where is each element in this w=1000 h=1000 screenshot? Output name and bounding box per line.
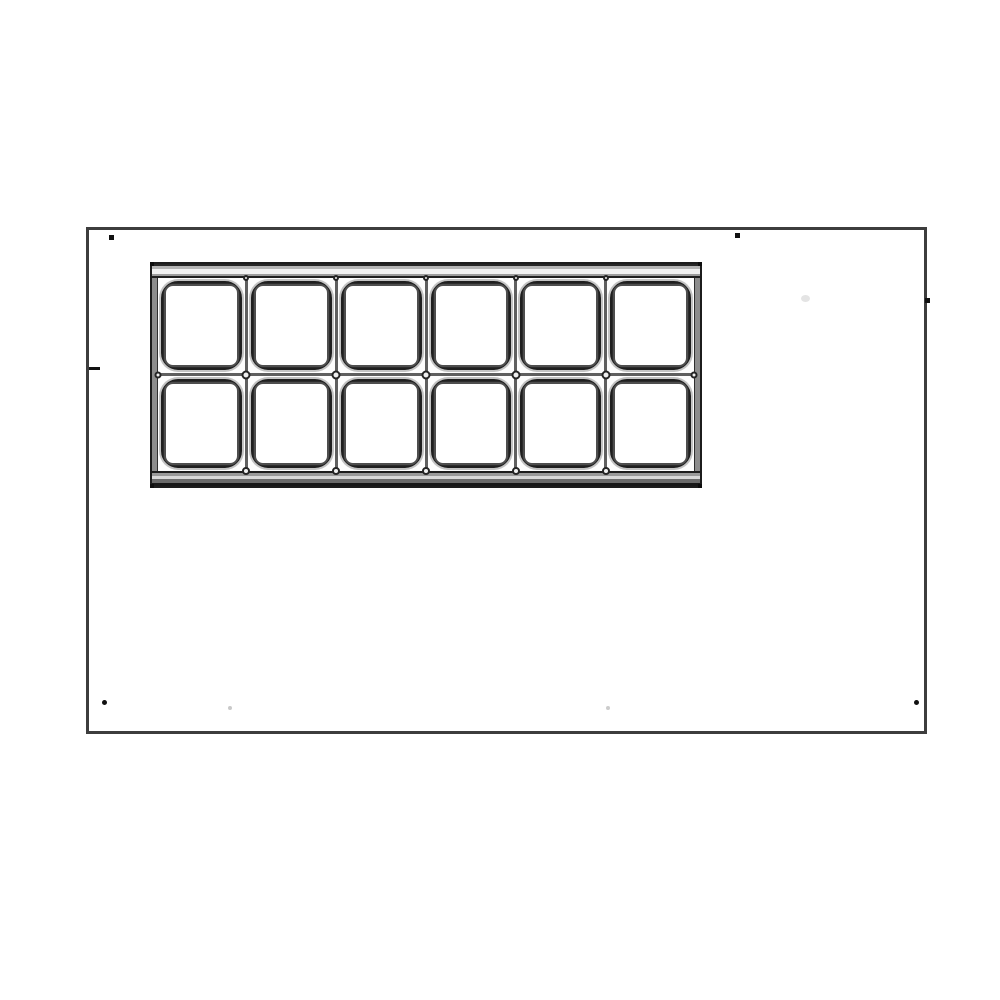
food-pan: [158, 376, 245, 471]
food-pan: [607, 376, 694, 471]
grid-junction-circle: [333, 275, 339, 281]
screw-dot-right-edge: [925, 298, 930, 303]
food-pan: [248, 278, 335, 373]
countertop-surface-outline: [86, 227, 927, 734]
pan-well-opening: [434, 284, 509, 367]
pan-rail-body: [152, 278, 700, 471]
unit-corner-dot: [150, 484, 154, 488]
unit-corner-dot: [698, 484, 702, 488]
pan-well-opening: [254, 284, 329, 367]
pan-well-opening: [434, 382, 509, 465]
pan-well-opening: [344, 382, 419, 465]
grid-junction-circle: [511, 370, 520, 379]
grid-junction-circle: [423, 275, 429, 281]
grid-junction-circle: [242, 370, 251, 379]
grid-junction-circle: [422, 370, 431, 379]
grid-junction-circle: [513, 275, 519, 281]
grid-junction-circle: [422, 467, 430, 475]
food-pan: [517, 376, 604, 471]
grid-junction-circle: [332, 370, 341, 379]
food-pan: [428, 376, 515, 471]
food-pan: [338, 376, 425, 471]
screw-dot-top-center: [735, 233, 740, 238]
food-pan: [338, 278, 425, 373]
grid-junction-circle: [691, 371, 698, 378]
grid-junction-circle: [601, 370, 610, 379]
faint-smudge-right: [801, 295, 810, 302]
grid-junction-circle: [603, 275, 609, 281]
tick-left-edge: [89, 367, 100, 370]
grid-junction-circle: [155, 371, 162, 378]
unit-corner-dot: [150, 262, 154, 266]
pan-well-opening: [613, 382, 688, 465]
food-pan: [428, 278, 515, 373]
food-pan: [517, 278, 604, 373]
screw-dot-top-left: [109, 235, 114, 240]
pan-well-opening: [523, 284, 598, 367]
grid-junction-circle: [243, 275, 249, 281]
unit-corner-dot: [698, 262, 702, 266]
grid-junction-circle: [242, 467, 250, 475]
grid-junction-circle: [332, 467, 340, 475]
pan-well-opening: [344, 284, 419, 367]
pan-rail-unit: [150, 262, 702, 488]
food-pan: [607, 278, 694, 373]
food-pan: [158, 278, 245, 373]
pan-well-opening: [164, 284, 239, 367]
pan-well-opening: [613, 284, 688, 367]
pan-well-opening: [164, 382, 239, 465]
grid-junction-circle: [512, 467, 520, 475]
faint-dot-bottom-center: [606, 706, 610, 710]
screw-dot-bottom-right: [914, 700, 919, 705]
food-pan: [248, 376, 335, 471]
faint-dot-bottom-left: [228, 706, 232, 710]
pan-well-opening: [254, 382, 329, 465]
pan-well-opening: [523, 382, 598, 465]
pan-grid: [158, 278, 694, 471]
screw-dot-bottom-left: [102, 700, 107, 705]
grid-junction-circle: [602, 467, 610, 475]
